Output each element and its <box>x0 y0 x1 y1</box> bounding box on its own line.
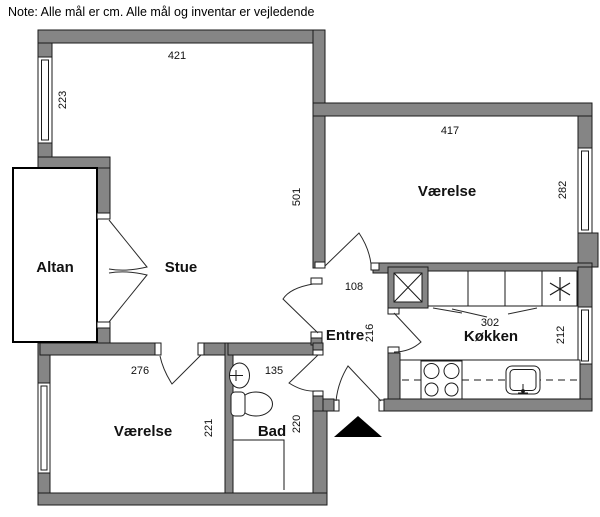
counter-leader-lines <box>433 308 537 317</box>
wall-segment <box>313 411 327 505</box>
kitchen-base-counter <box>400 360 580 399</box>
dimension-label: 282 <box>557 181 569 199</box>
dimension-label: 421 <box>168 50 186 62</box>
dimension-label: 223 <box>57 91 69 109</box>
wall-segment <box>97 168 110 213</box>
window-icon <box>38 383 50 473</box>
dimension-label: 417 <box>441 125 459 137</box>
dimension-label: 212 <box>555 326 567 344</box>
dimension-label: 216 <box>364 324 376 342</box>
wall-segment <box>38 157 110 168</box>
room-label-stue: Stue <box>165 259 198 276</box>
bedroom-bottom-door-swing-icon <box>160 355 201 384</box>
stove-icon <box>421 361 462 399</box>
room-label-entre: Entre <box>326 327 364 344</box>
toilet-icon <box>231 392 273 416</box>
dimension-label: 108 <box>345 281 363 293</box>
floor-plan-page: Note: Alle mål er cm. Alle mål og invent… <box>0 0 600 517</box>
dimension-label: 302 <box>481 317 499 329</box>
dimension-label: 276 <box>131 365 149 377</box>
kitchen-door-swing-icon <box>394 313 421 352</box>
floor-plan-drawing: Stue Altan Værelse Værelse Entre Køkken … <box>0 0 600 517</box>
balcony-outline <box>13 168 97 342</box>
dimension-label: 221 <box>203 419 215 437</box>
wall-segment <box>578 267 592 307</box>
kitchen-sink-icon <box>506 366 540 394</box>
room-label-koekken: Køkken <box>464 328 518 345</box>
room-label-vaerelse-top: Værelse <box>418 183 476 200</box>
window-icon <box>38 57 52 143</box>
wall-segment <box>384 399 592 411</box>
balcony-door-swing-icon <box>109 220 147 322</box>
wall-segment <box>313 103 592 116</box>
wash-basin-icon <box>229 363 250 388</box>
window-icon <box>578 307 592 364</box>
room-label-altan: Altan <box>36 259 74 276</box>
dimension-label: 220 <box>291 415 303 433</box>
wall-segment <box>225 343 233 493</box>
wall-segment <box>313 396 323 411</box>
shower-partition <box>233 440 284 490</box>
wall-segment <box>388 353 400 399</box>
entrance-door-swing-icon <box>336 366 381 401</box>
bath-door-swing-icon <box>289 355 318 391</box>
shaft-icon <box>394 273 422 302</box>
room-label-bad: Bad <box>258 423 286 440</box>
wall-segment <box>38 43 52 57</box>
wall-segment <box>313 30 325 268</box>
dimension-label: 135 <box>265 365 283 377</box>
wall-segment <box>38 493 327 505</box>
wall-segment <box>228 343 323 355</box>
entrance-arrow-icon <box>334 416 382 437</box>
dimension-label: 501 <box>291 188 303 206</box>
living-room-door-swing-icon <box>283 284 318 333</box>
window-icon <box>578 148 592 233</box>
wall-segment <box>38 473 50 493</box>
wall-segment <box>578 233 598 267</box>
wall-segment <box>578 116 592 148</box>
wall-segment <box>40 343 160 355</box>
wall-segment <box>38 30 325 43</box>
kitchen-upper-counter <box>428 271 577 306</box>
room-label-vaerelse-bottom: Værelse <box>114 423 172 440</box>
bedroom-top-door-swing-icon <box>325 233 371 266</box>
